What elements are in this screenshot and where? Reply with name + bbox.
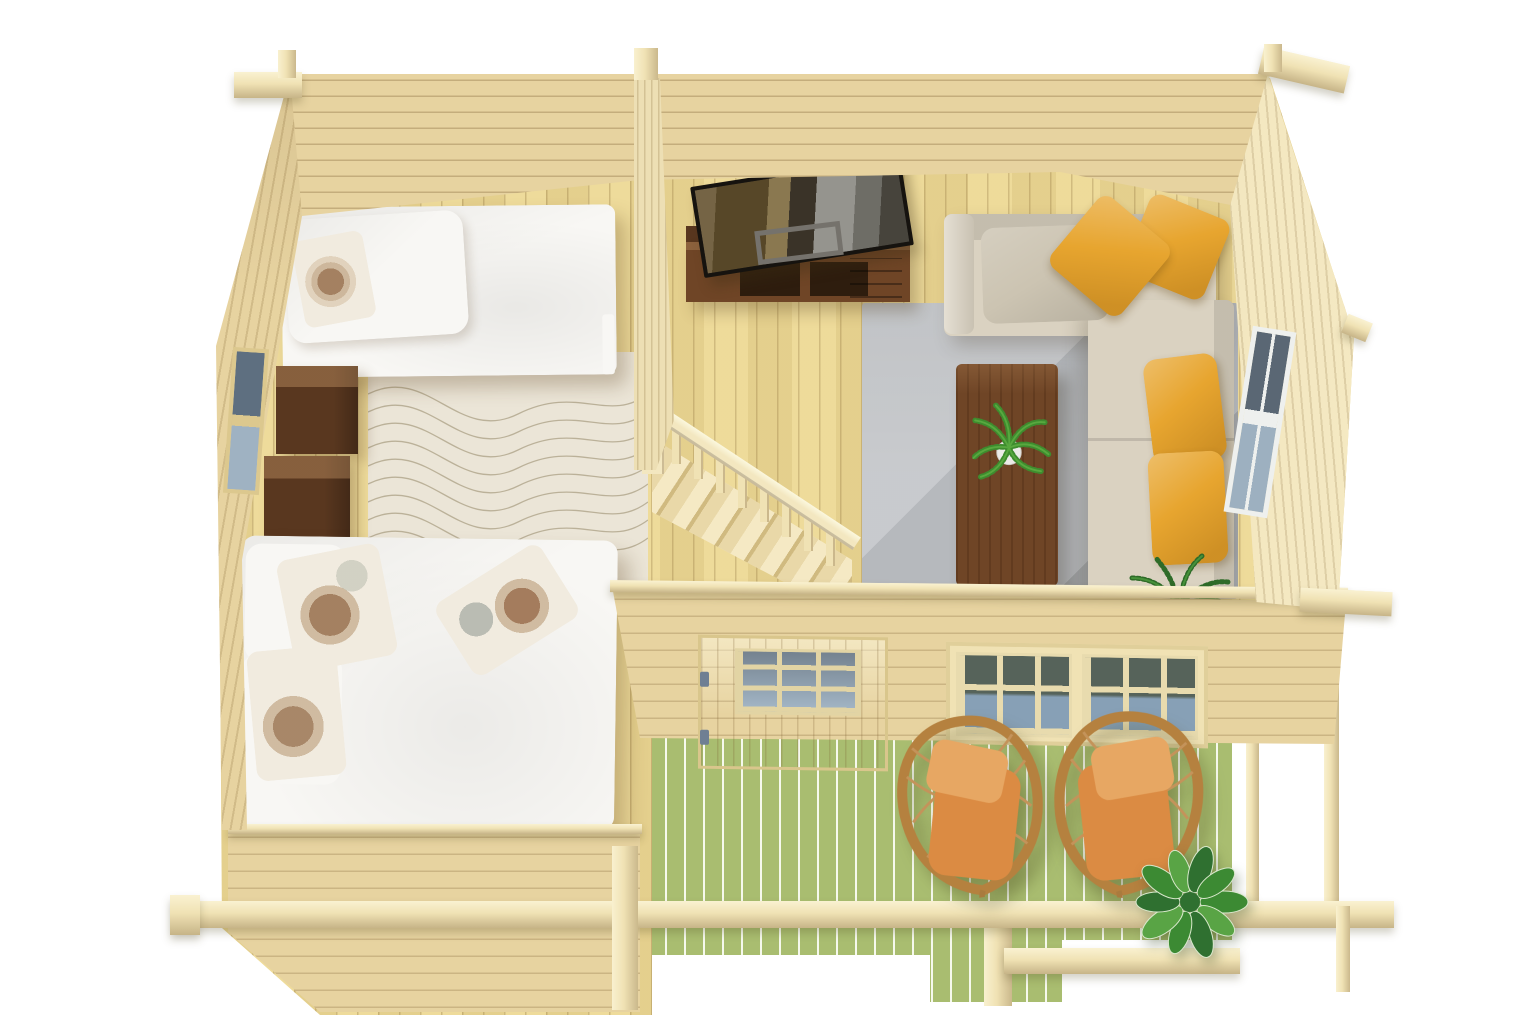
beam-end-cap (170, 895, 200, 935)
railing-corner-drop (1336, 906, 1350, 992)
terrace-roof-beam (1299, 588, 1392, 617)
hanging-chair (881, 702, 1061, 908)
cabin-top-view-render (0, 0, 1536, 1025)
log-end-top-right-stub (1264, 44, 1282, 72)
potted-fern (962, 396, 1056, 490)
log-end-partition (634, 48, 658, 80)
door-glazing (735, 648, 861, 716)
single-bed (281, 204, 617, 377)
yellow-seat-cushion (1142, 352, 1228, 466)
door-hinge (700, 672, 709, 687)
terrace-potted-plant (1128, 836, 1260, 966)
double-bed (238, 535, 618, 830)
sideboard-drawers (850, 258, 902, 298)
sofa-armrest (944, 214, 974, 334)
double-bed-floral-pillow (246, 644, 347, 782)
terrace-corner-post (612, 846, 638, 1010)
front-door (698, 635, 888, 772)
door-hinge (700, 730, 709, 745)
single-bed-side-board (602, 314, 615, 374)
nightstand (276, 366, 358, 454)
bedroom-wall-top-plate (228, 824, 642, 834)
log-end-top-left-stub (278, 50, 296, 78)
